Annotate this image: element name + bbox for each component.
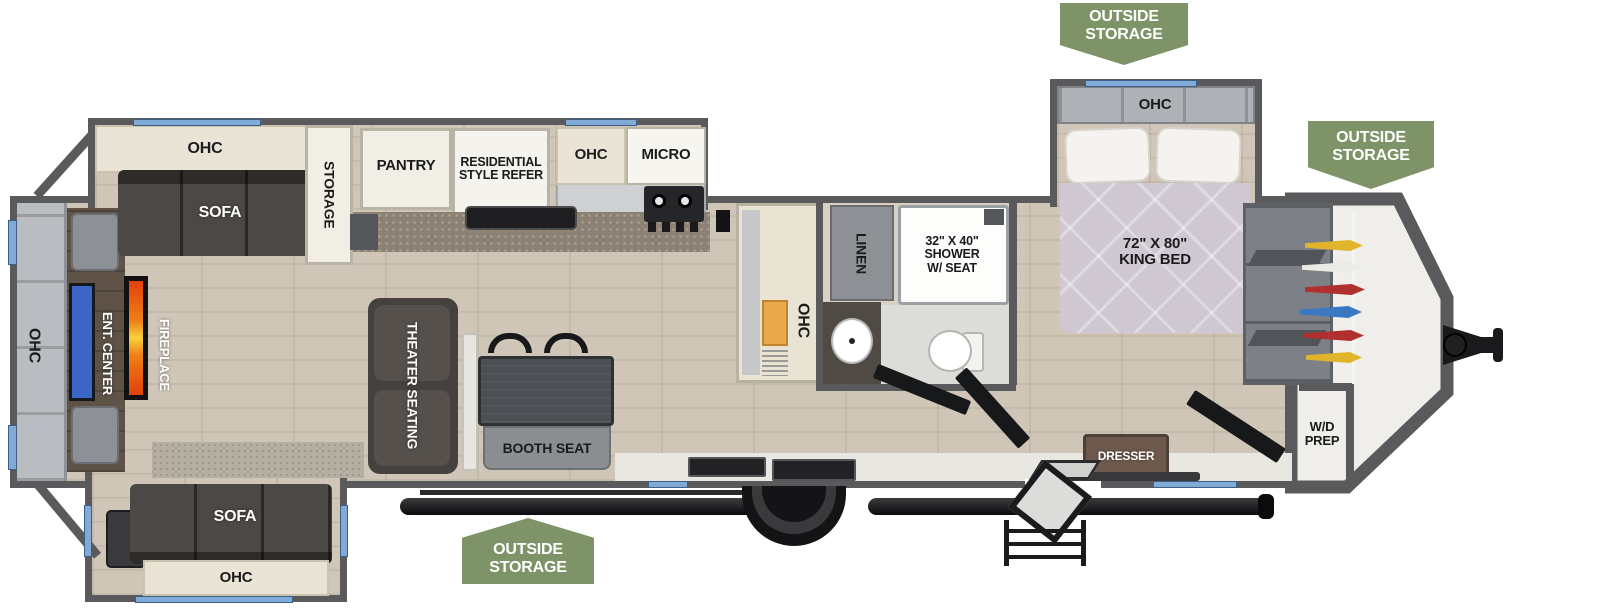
- shower-label: 32" X 40" SHOWER W/ SEAT: [902, 214, 1002, 296]
- theater-label: THEATER SEATING: [386, 310, 438, 462]
- counter-appliance: [350, 214, 378, 250]
- booth-table: [478, 356, 614, 426]
- rear-window-2: [8, 425, 17, 470]
- bottom-window-1: [648, 481, 688, 488]
- cooktop-knob-2: [678, 194, 692, 208]
- sofa-top-ohc-label: OHC: [150, 130, 260, 168]
- refrigerator-label: RESIDENTIAL STYLE REFER: [454, 142, 548, 196]
- wardrobe-shelf-1: [1248, 250, 1327, 266]
- cooktop-grate: [648, 222, 704, 232]
- dresser-label: DRESSER: [1085, 440, 1167, 472]
- toilet-bowl: [928, 330, 972, 372]
- entry-cabinet-shelf: [762, 300, 788, 346]
- pantry-label: PANTRY: [364, 146, 448, 186]
- sofa-bottom-label: SOFA: [175, 500, 295, 534]
- kitchen-window: [565, 119, 637, 126]
- bottom-window-2: [1153, 481, 1237, 488]
- bedroom-ohc-label: OHC: [1100, 89, 1210, 121]
- bottom-slide-window-left: [84, 505, 92, 557]
- bed-pillow-1: [1064, 127, 1151, 185]
- kitchen-ohc-label: OHC: [558, 134, 624, 176]
- badge-outside-storage-top: OUTSIDE STORAGE: [1060, 3, 1188, 65]
- cooktop-knob-1: [652, 194, 666, 208]
- awning-right-cap: [1258, 494, 1274, 519]
- microwave-label: MICRO: [628, 134, 704, 176]
- rear-window-1: [8, 220, 17, 265]
- kitchen-sink: [465, 206, 577, 230]
- awning-left: [400, 498, 765, 515]
- wd-prep-label: W/D PREP: [1298, 408, 1346, 460]
- entry-cabinet-side: [742, 210, 760, 375]
- speaker-top: [71, 213, 119, 271]
- king-bed-label: 72" X 80" KING BED: [1080, 226, 1230, 278]
- bedroom-step-ladder: [1004, 520, 1086, 566]
- bed-pillow-2: [1155, 127, 1242, 185]
- storage-label: STORAGE: [315, 133, 343, 257]
- wd-prep-wall-top: [1299, 383, 1353, 391]
- badge-outside-storage-bottom: OUTSIDE STORAGE: [462, 518, 594, 584]
- fireplace-label: FIREPLACE: [152, 295, 176, 415]
- living-carpet: [152, 442, 364, 478]
- rear-ohc-label: OHC: [20, 300, 46, 390]
- bottom-window-dark-1: [688, 457, 766, 477]
- tv-screen: [69, 283, 95, 401]
- entry-ohc-label: OHC: [788, 270, 816, 370]
- booth-label: BOOTH SEAT: [486, 432, 608, 464]
- booth-partition: [462, 333, 478, 471]
- wd-prep-wall-right: [1346, 383, 1354, 487]
- bottom-slide-window-bottom: [135, 596, 293, 603]
- badge-outside-storage-right: OUTSIDE STORAGE: [1308, 121, 1434, 189]
- bedroom-wall: [1009, 203, 1017, 385]
- wall-control-box: [716, 210, 730, 232]
- floor-plan: OUTSIDE STORAGE OUTSIDE STORAGE OUTSIDE …: [0, 0, 1600, 616]
- bottom-window-dark-2: [772, 459, 856, 481]
- top-window-1: [133, 119, 261, 126]
- bottom-slide-window-right: [340, 505, 348, 557]
- linen-label: LINEN: [846, 212, 876, 296]
- bottom-ohc-label: OHC: [168, 563, 304, 593]
- bath-faucet-icon: [849, 338, 855, 344]
- entry-cabinet-vent: [762, 350, 788, 376]
- ent-center-label: ENT. CENTER: [96, 288, 118, 420]
- sofa-top-label: SOFA: [150, 195, 290, 231]
- fireplace-flame-icon: [129, 281, 143, 395]
- bedroom-window: [1085, 80, 1197, 87]
- awning-left-rail: [420, 490, 750, 495]
